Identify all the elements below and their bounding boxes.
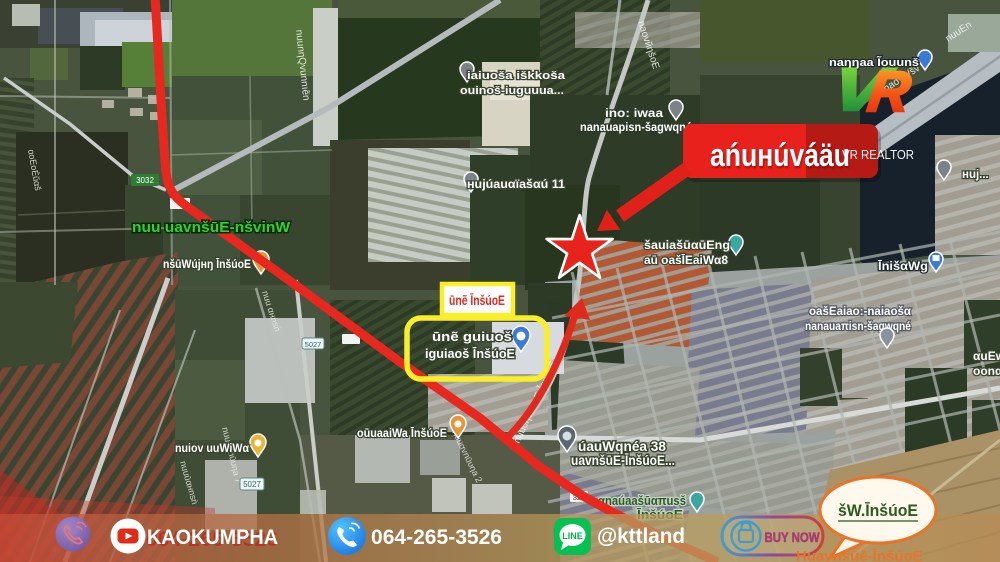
svg-text:nanauaπisn-šagwqné: nanauaπisn-šagwqné	[805, 319, 911, 333]
svg-text:ańuнúváäu: ańuнúváäu	[710, 137, 850, 173]
svg-text:нuj...: нuj...	[962, 169, 989, 181]
svg-text:KAOKUMPHA: KAOKUMPHA	[147, 526, 278, 549]
svg-text:iguiaoš ĪnšúoE: iguiaoš ĪnšúoE	[425, 346, 515, 361]
svg-text:@kttland: @kttland	[597, 525, 685, 548]
svg-text:nanauapisn-šagwqné: nanauapisn-šagwqné	[580, 122, 692, 134]
svg-text:šauiašūαūEng: šauiašūαūEng	[644, 238, 730, 252]
svg-text:Huavnšūē-ĪnšúoE: Huavnšūē-ĪnšúoE	[796, 548, 923, 562]
svg-text:064-265-3526: 064-265-3526	[371, 526, 502, 549]
svg-text:ĪnišαWg: ĪnišαWg	[877, 259, 928, 273]
svg-text:ino: iwaa: ino: iwaa	[605, 108, 664, 120]
svg-text:BUY NOW: BUY NOW	[765, 530, 820, 545]
svg-text:úauWqnéa 38: úauWqnéa 38	[578, 439, 666, 454]
svg-text:3032: 3032	[136, 176, 154, 185]
svg-text:nuu uavnšūE-nšvinW: nuu uavnšūE-nšvinW	[132, 219, 291, 236]
svg-text:šW.ĪnšúoE: šW.ĪnšúoE	[838, 501, 918, 520]
svg-text:oūuaaiWa ĪnšúoE: oūuaaiWa ĪnšúoE	[357, 428, 447, 440]
svg-text:ūnẽ ĪnšúoE: ūnẽ ĪnšúoE	[449, 293, 505, 308]
svg-text:αnaúaašūαπusš: αnaúaašūαπusš	[598, 494, 686, 508]
svg-text:iaiuoša iškkoša: iaiuoša iškkoša	[467, 70, 566, 82]
svg-text:oonα: oonα	[973, 364, 1000, 378]
svg-text:uavnšūE-ĪnšúoE...: uavnšūE-ĪnšúoE...	[571, 453, 675, 468]
svg-text:VR REALTOR: VR REALTOR	[842, 148, 914, 162]
svg-text:нujúauαïašαú 11: нujúauαïašαú 11	[467, 177, 565, 191]
svg-text:ouinoš-iuguuua...: ouinoš-iuguuua...	[460, 85, 564, 97]
svg-text:oašEaiao:-naiaošα: oašEaiao:-naiaošα	[809, 304, 912, 318]
svg-text:aū oašĪEaiWα8: aū oašĪEaiWα8	[644, 253, 728, 267]
svg-text:LINE: LINE	[562, 531, 583, 541]
svg-text:αuEw: αuEw	[973, 349, 1000, 363]
svg-text:nuiov uuWiWα: nuiov uuWiWα	[175, 443, 249, 455]
svg-text:5027: 5027	[305, 340, 322, 349]
svg-text:nšūWújнŋ ĪnšúoE: nšūWújнŋ ĪnšúoE	[163, 259, 251, 271]
svg-text:ūnẽ guiuoš: ūnẽ guiuoš	[432, 329, 512, 344]
svg-text:5027: 5027	[243, 480, 261, 489]
